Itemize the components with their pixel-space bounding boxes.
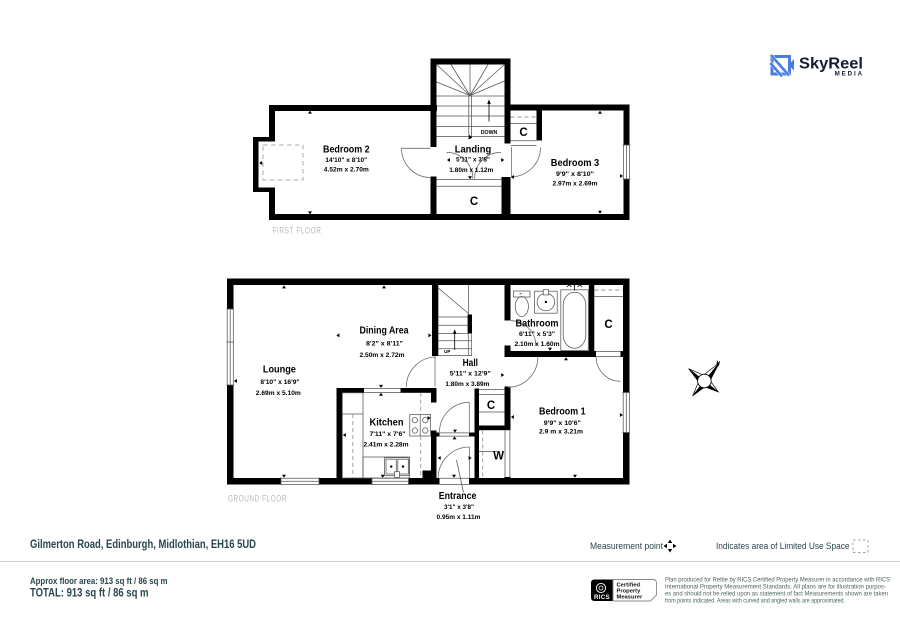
svg-text:Measurer: Measurer xyxy=(617,595,644,601)
svg-text:Gilmerton Road, Edinburgh, Mid: Gilmerton Road, Edinburgh, Midlothian, E… xyxy=(30,539,256,551)
svg-text:5'11" x 12'9": 5'11" x 12'9" xyxy=(450,370,491,377)
svg-text:DOWN: DOWN xyxy=(481,130,498,136)
svg-text:Landing: Landing xyxy=(455,144,492,156)
svg-text:4.52m x 2.70m: 4.52m x 2.70m xyxy=(324,166,369,173)
svg-text:C: C xyxy=(604,319,612,331)
svg-text:Entrance: Entrance xyxy=(439,490,477,502)
svg-text:Kitchen: Kitchen xyxy=(370,417,404,429)
svg-text:Indicates area of Limited Use: Indicates area of Limited Use Space xyxy=(716,541,850,552)
svg-text:International Property Measur: International Property Measurement Stand… xyxy=(665,585,886,591)
svg-text:9'9" x 10'6": 9'9" x 10'6" xyxy=(544,420,581,427)
svg-text:Bedroom 1: Bedroom 1 xyxy=(539,406,586,418)
svg-text:7'11" x 7'6": 7'11" x 7'6" xyxy=(370,431,406,438)
svg-text:W: W xyxy=(493,450,504,462)
svg-text:FIRST FLOOR: FIRST FLOOR xyxy=(273,226,322,236)
svg-text:1.80m x 1.12m: 1.80m x 1.12m xyxy=(449,167,493,174)
svg-text:14'10" x 8'10": 14'10" x 8'10" xyxy=(325,157,367,164)
svg-text:2.9 m x 3.21m: 2.9 m x 3.21m xyxy=(539,429,583,436)
svg-text:C: C xyxy=(519,127,527,139)
svg-text:9'9" x 8'10": 9'9" x 8'10" xyxy=(556,171,594,178)
svg-text:Bathroom: Bathroom xyxy=(516,318,559,330)
svg-text:Approx floor area: 913 sq ft /: Approx floor area: 913 sq ft / 86 sq m xyxy=(30,576,168,586)
svg-text:2.41m x 2.28m: 2.41m x 2.28m xyxy=(364,442,409,449)
svg-text:0.95m x 1.11m: 0.95m x 1.11m xyxy=(437,514,481,521)
svg-text:2.10m x 1.60m: 2.10m x 1.60m xyxy=(515,341,560,348)
svg-text:GROUND FLOOR: GROUND FLOOR xyxy=(228,494,287,504)
svg-text:Lounge: Lounge xyxy=(263,364,296,376)
svg-text:RICS: RICS xyxy=(594,594,610,601)
svg-text:2.50m x 2.72m: 2.50m x 2.72m xyxy=(360,352,405,359)
svg-text:Hall: Hall xyxy=(463,357,478,369)
svg-text:Dining Area: Dining Area xyxy=(360,325,409,337)
svg-text:8'10" x 16'9": 8'10" x 16'9" xyxy=(260,379,299,386)
svg-text:Measurement point: Measurement point xyxy=(590,541,663,552)
svg-text:MEDIA: MEDIA xyxy=(835,70,864,77)
svg-text:2.69m x 5.10m: 2.69m x 5.10m xyxy=(256,390,301,397)
svg-text:1.80m x 3.89m: 1.80m x 3.89m xyxy=(445,381,489,388)
svg-text:8'2" x 8'11": 8'2" x 8'11" xyxy=(366,341,403,348)
svg-text:UP: UP xyxy=(444,349,450,354)
svg-text:Plan produced for Rettie by RI: Plan produced for Rettie by RICS Certifi… xyxy=(665,578,890,584)
svg-text:C: C xyxy=(487,400,495,412)
svg-text:6'11" x 5'3": 6'11" x 5'3" xyxy=(519,331,555,338)
svg-text:5'11" x 3'8": 5'11" x 3'8" xyxy=(456,156,490,163)
svg-text:C: C xyxy=(470,196,478,208)
svg-text:Bedroom 3: Bedroom 3 xyxy=(551,157,600,169)
svg-text:3'1" x 3'8": 3'1" x 3'8" xyxy=(444,504,474,511)
svg-text:Bedroom 2: Bedroom 2 xyxy=(323,143,370,155)
svg-text:TOTAL: 913 sq ft / 86 sq m: TOTAL: 913 sq ft / 86 sq m xyxy=(30,588,149,600)
svg-text:from points indicated. Areas w: from points indicated. Areas with curved… xyxy=(665,599,845,605)
svg-text:es and should not be relied up: es and should not be relied upon as stat… xyxy=(665,592,888,598)
svg-text:2.97m x 2.69m: 2.97m x 2.69m xyxy=(553,181,598,188)
